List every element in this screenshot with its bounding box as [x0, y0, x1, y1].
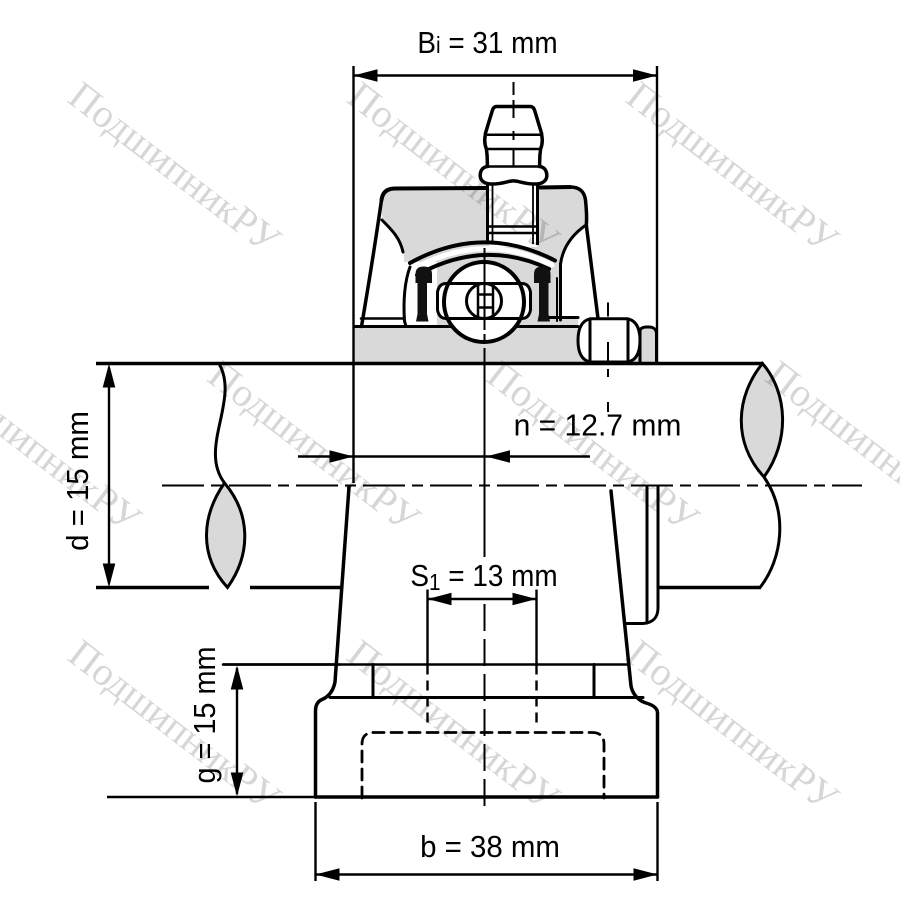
svg-text:b = 38 mm: b = 38 mm — [420, 830, 560, 864]
